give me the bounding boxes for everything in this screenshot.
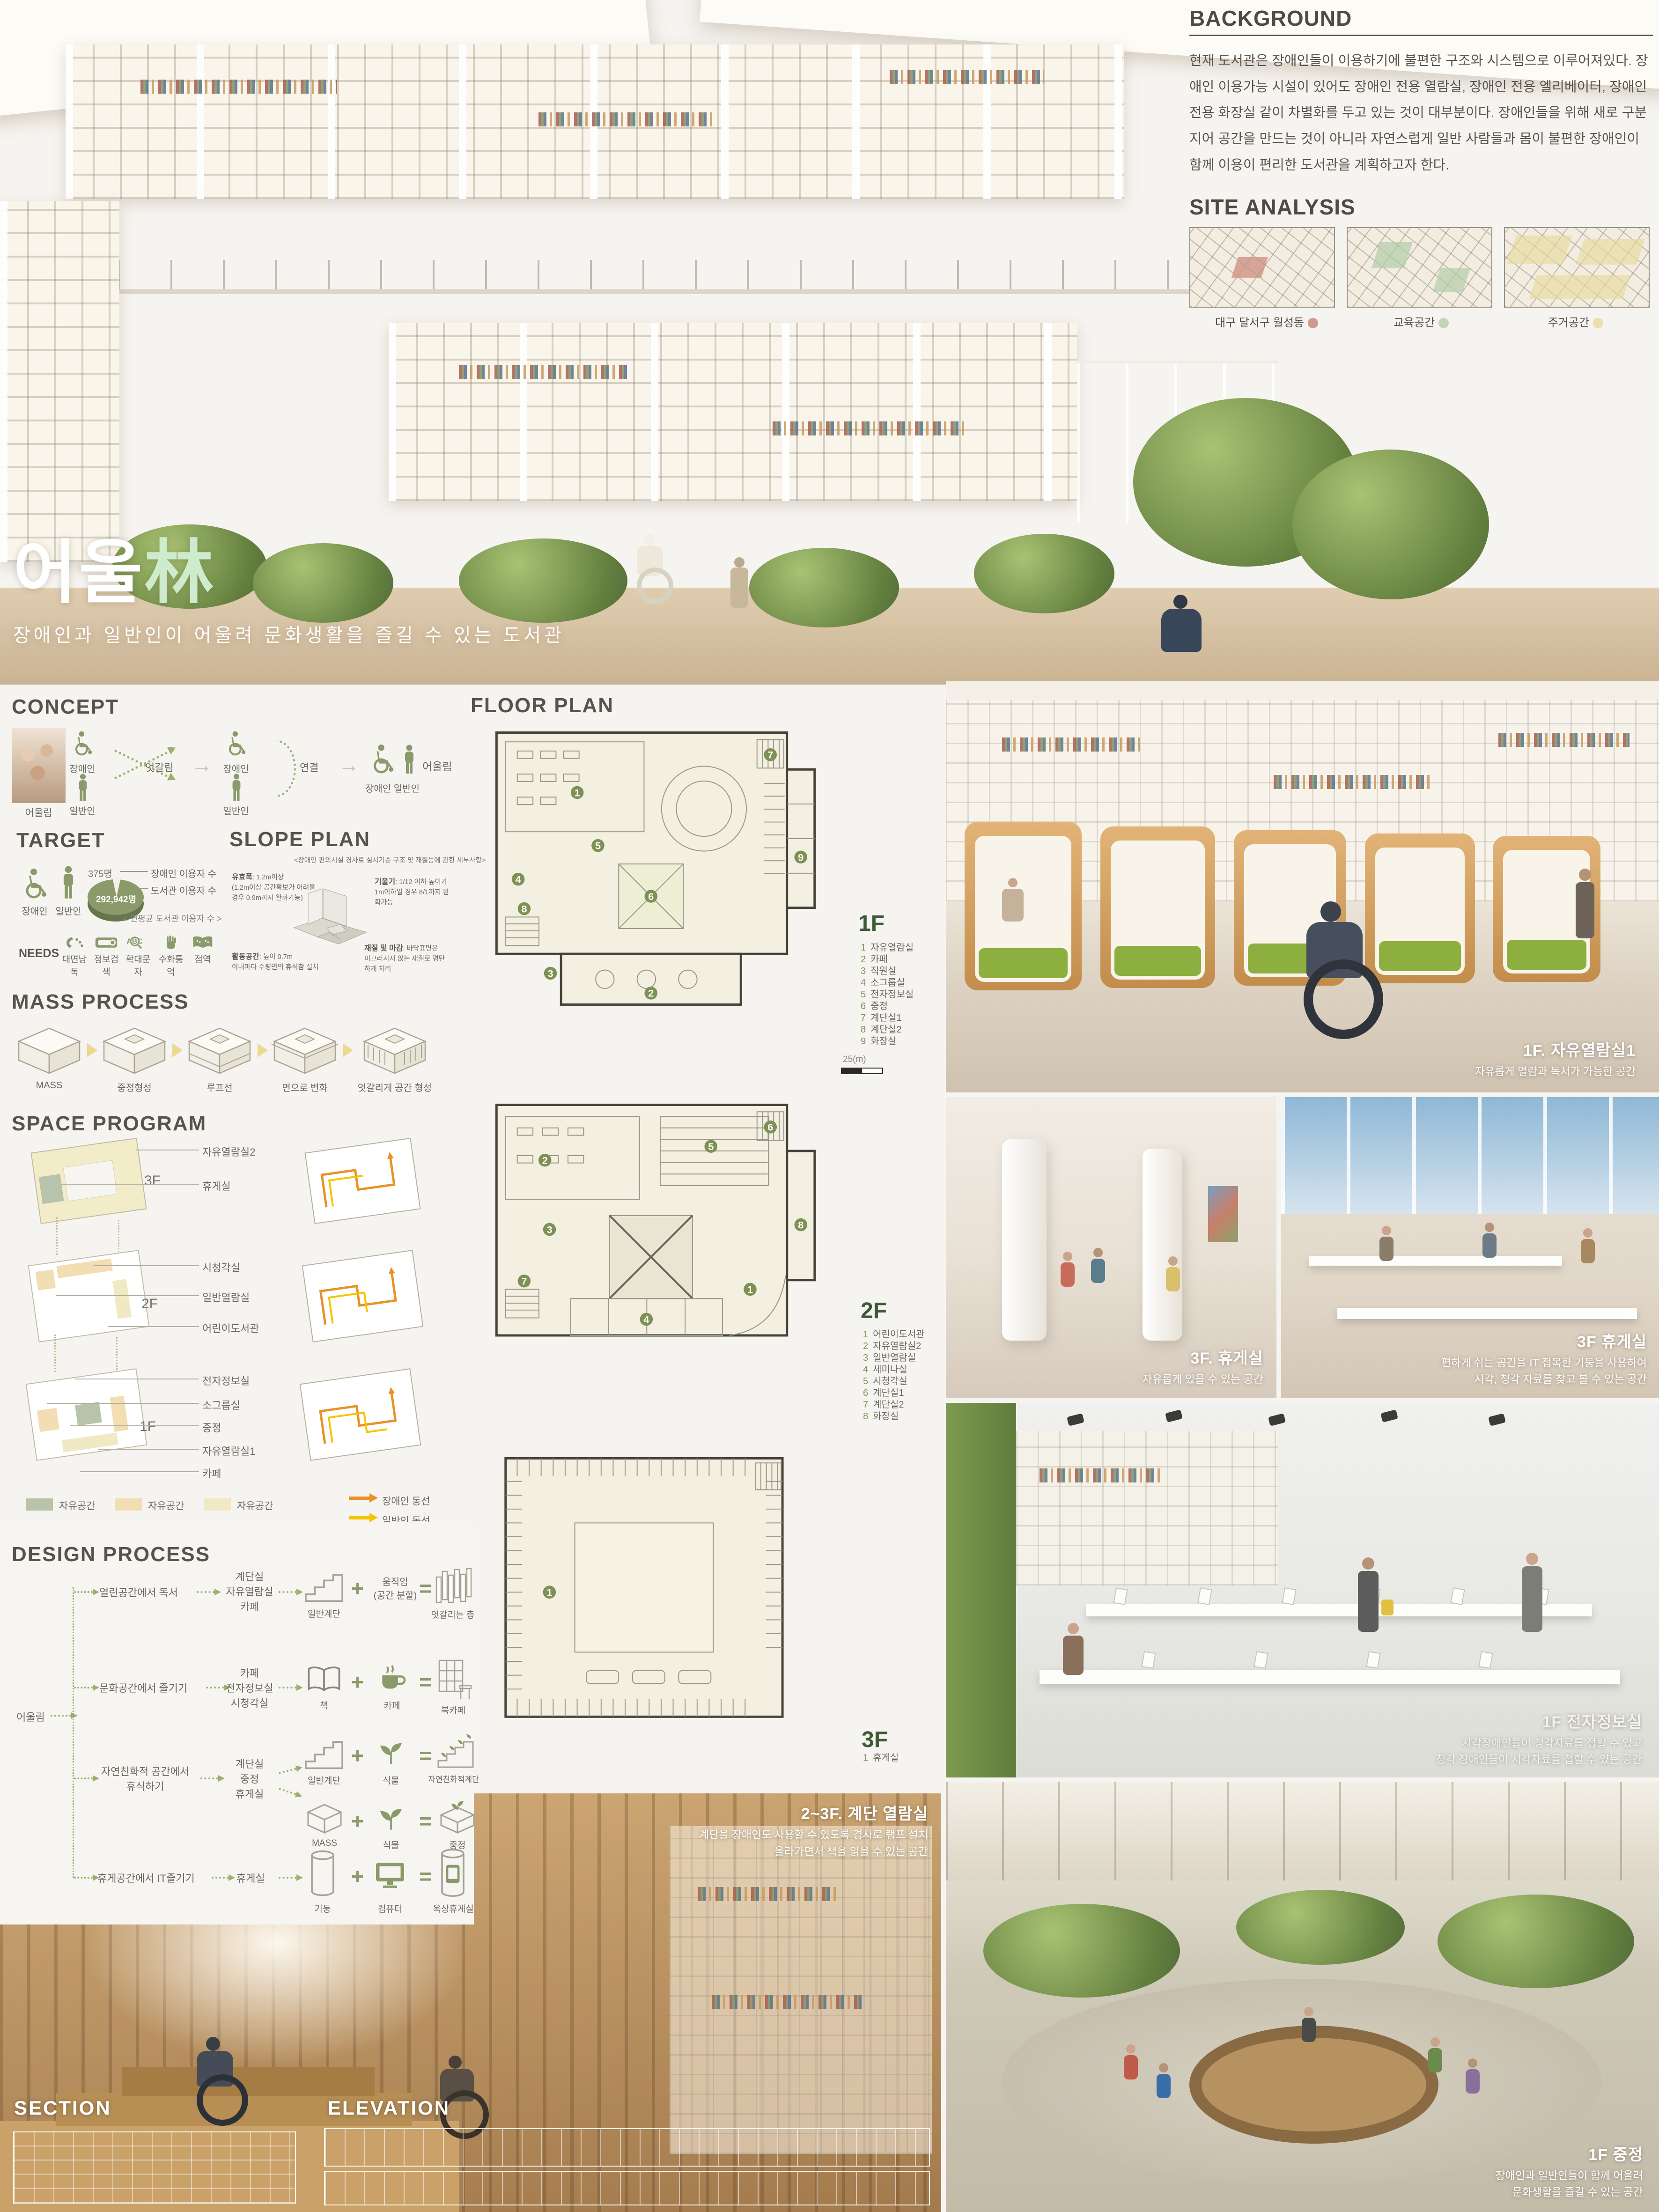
site-map-location	[1189, 227, 1335, 308]
round-column	[1002, 1139, 1047, 1341]
space-program-heading: SPACE PROGRAM	[12, 1112, 206, 1135]
icon-label: 옥상휴게실	[431, 1902, 476, 1915]
plus-operator: +	[351, 1576, 364, 1601]
plan-legend-item: 4소그룹실	[861, 977, 905, 989]
visitor	[1379, 1226, 1394, 1261]
arrow-icon: →	[191, 752, 213, 777]
equals-operator: =	[419, 1864, 432, 1889]
plant-icon	[377, 1804, 405, 1833]
circulation-diagram-2f	[302, 1250, 424, 1342]
space-label: 소그룹실	[202, 1397, 240, 1412]
svg-text:4: 4	[516, 874, 521, 885]
site-map-caption: 주거공간	[1498, 313, 1653, 330]
disabled-label: 장애인	[66, 761, 99, 775]
presentation-board: 어울林 장애인과 일반인이 어울려 문화생활을 즐길 수 있는 도서관 BACK…	[0, 0, 1659, 2212]
site-analysis-heading: SITE ANALYSIS	[1189, 194, 1653, 220]
tablet-stand	[1253, 1651, 1268, 1669]
activity-label: 문화공간에서 즐기기	[99, 1680, 187, 1695]
tablet-table	[1086, 1604, 1592, 1616]
process-arrow	[343, 1043, 353, 1057]
window-sky	[1281, 1097, 1659, 1214]
tablet-stand	[1282, 1587, 1297, 1605]
general-circulation-arrow	[349, 1516, 370, 1519]
plan-legend-item: 6중정	[861, 1001, 888, 1012]
tablet-stand	[1366, 1651, 1381, 1669]
crossing-label: 엇갈림	[145, 759, 174, 774]
courtyard-cube-icon	[438, 1797, 477, 1838]
plus-operator: +	[351, 1743, 364, 1768]
legend-label: 자유공간	[148, 1498, 184, 1512]
target-heading: TARGET	[16, 829, 105, 852]
process-arrow	[87, 1043, 97, 1057]
icon-label: 카페	[376, 1699, 408, 1711]
svg-text:4: 4	[643, 1313, 649, 1325]
person-icon	[76, 774, 90, 804]
pie-large-value: 292,942명	[92, 892, 140, 905]
needs-label: NEEDS	[19, 947, 59, 960]
need-magnified-text: ABC 확대문자	[123, 936, 154, 978]
photographer-silhouette	[1161, 595, 1202, 652]
design-process-heading: DESIGN PROCESS	[12, 1543, 210, 1566]
design-root-label: 어울림	[16, 1709, 45, 1724]
render-caption-title: 2~3F. 계단 열람실	[699, 1801, 928, 1824]
concept-photo	[12, 728, 66, 803]
leader-line	[120, 871, 148, 872]
ceiling-spotlight	[1067, 1413, 1084, 1426]
visitor	[1428, 2037, 1442, 2072]
media-screen	[1208, 1186, 1238, 1242]
svg-text:1: 1	[575, 787, 580, 798]
plan-legend-item: 2자유열람실2	[863, 1341, 921, 1352]
railing	[66, 289, 1199, 294]
stairs-icon	[303, 1738, 345, 1773]
visitor	[1124, 2044, 1138, 2079]
explode-guide	[118, 1220, 119, 1255]
svg-text:ABC: ABC	[126, 938, 143, 946]
poster-subtitle: 장애인과 일반인이 어울려 문화생활을 즐길 수 있는 도서관	[13, 620, 565, 647]
floor-tag-3f: 3F	[144, 1173, 161, 1189]
person-icon	[402, 745, 417, 777]
flow-arrow	[279, 1591, 296, 1593]
standing-visitor	[1522, 1553, 1542, 1632]
reading-pod	[1100, 826, 1215, 988]
leader-line	[94, 1265, 199, 1266]
flow-arrow	[212, 1877, 229, 1879]
courtyard-planting	[1236, 1890, 1405, 1965]
railing-posts	[66, 260, 1189, 291]
process-arrow	[172, 1043, 183, 1057]
need-braille: 점역	[187, 936, 218, 965]
svg-text:2: 2	[648, 988, 654, 999]
together-label: 어울림	[422, 758, 452, 774]
book-icon	[305, 1665, 343, 1697]
mass-cube-icon	[305, 1803, 344, 1838]
design-process-panel: DESIGN PROCESS 어울림 열린공간에서 독서 계단실 자유열람실 카…	[0, 1522, 474, 1924]
leader-line	[137, 888, 148, 889]
visitor	[1091, 1248, 1105, 1283]
wheelchair-user-silhouette	[1306, 901, 1383, 1039]
icon-label: 식물	[377, 1838, 405, 1851]
explode-guide	[116, 1337, 118, 1373]
street-pattern	[1348, 228, 1491, 307]
floor-plan-3f-drawing: 1	[480, 1440, 836, 1761]
seated-visitor	[1063, 1623, 1084, 1675]
legend-label: 자유공간	[237, 1498, 273, 1512]
bookshelf-wall	[1016, 1431, 1278, 1585]
flow-arrow	[279, 1687, 296, 1688]
general-label: 일반인	[66, 804, 99, 817]
stepped-platform	[122, 2067, 375, 2096]
title-hanja: 林	[144, 534, 215, 612]
pie-caption: < 연평균 도서관 이용자 수 >	[123, 912, 222, 924]
icon-label: 식물	[377, 1774, 405, 1786]
flow-trunk	[73, 1587, 74, 1878]
icon-label: 일반계단	[300, 1774, 348, 1786]
visitor	[1581, 1228, 1595, 1263]
svg-text:3: 3	[547, 1224, 553, 1235]
space-label: 시청각실	[202, 1260, 240, 1275]
lower-bookshelf-band	[389, 323, 1077, 501]
book-spines	[1498, 733, 1630, 747]
background-body: 현재 도서관은 장애인들이 이용하기에 불편한 구조와 시스템으로 이루어져있다…	[1189, 48, 1653, 178]
connection-label: 연결	[300, 759, 318, 774]
floor-tag-1f: 1F	[140, 1419, 156, 1435]
general-label: 일반인	[219, 804, 253, 817]
leader-line	[108, 1326, 199, 1327]
render-3f-lounge: 3F. 휴게실 자유롭게 있을 수 있는 공간	[946, 1097, 1276, 1398]
general-room-patch	[36, 1269, 56, 1290]
book-spines	[1274, 775, 1433, 789]
plus-term-label: 움직임 (공간 분할)	[369, 1574, 421, 1601]
book-spines	[712, 1995, 862, 2009]
site-map-caption: 대구 달서구 월성동	[1189, 313, 1344, 330]
book-spines	[538, 112, 716, 126]
connection-arc	[257, 740, 296, 797]
render-3f-lounge-tables: 3F 휴게실 편하게 쉬는 공간을 IT 접목한 기둥을 사용하여 시각, 청각…	[1281, 1097, 1659, 1398]
svg-text:6: 6	[648, 891, 654, 902]
mass-step: 루프선	[184, 1025, 255, 1094]
flow-arrow	[279, 1768, 296, 1774]
rest-area-patch	[39, 1174, 64, 1204]
icon-label: 기둥	[307, 1902, 339, 1915]
plan-tag-1f: 1F	[858, 911, 885, 936]
stairs-icon	[303, 1571, 345, 1606]
plan-legend-item: 5전자정보실	[861, 989, 914, 1001]
elevation-heading: ELEVATION	[328, 2097, 450, 2119]
bookshelf-wall	[670, 1826, 932, 2154]
visitor	[1302, 2007, 1316, 2042]
tablet-stand	[1141, 1651, 1156, 1669]
site-map-education	[1347, 227, 1492, 308]
plan-legend-item: 7계단실2	[863, 1399, 904, 1411]
render-caption-lines: 시각장애인들이 청각자료를 접할 수 있고 청각 장애인들이 시각자료를 접할 …	[1436, 1735, 1642, 1768]
plus-operator: +	[351, 1808, 364, 1834]
legend-label: 자유공간	[59, 1498, 95, 1512]
residential-dot	[1593, 318, 1603, 328]
children-lib-patch	[112, 1279, 132, 1319]
ceiling-spotlight	[1165, 1409, 1183, 1423]
need-face-reading: 대면낭독	[59, 936, 90, 978]
equals-operator: =	[419, 1808, 432, 1834]
arrow-icon: →	[338, 752, 360, 777]
plus-operator: +	[351, 1669, 364, 1695]
circulation-diagram-1f	[300, 1368, 421, 1461]
flow-arrow	[279, 1877, 296, 1879]
tablet-stand	[1197, 1587, 1212, 1605]
space-list: 계단실 중정 휴게실	[224, 1756, 275, 1801]
plan-legend-item: 1자유열람실	[861, 942, 914, 954]
slope-axon-drawing	[289, 883, 369, 956]
render-caption-title: 3F 휴게실	[1441, 1329, 1647, 1352]
svg-text:3: 3	[548, 967, 553, 979]
plan-legend-item: 1어린이도서관	[863, 1329, 925, 1341]
render-caption-lines: 자유롭게 있을 수 있는 공간	[1143, 1371, 1263, 1388]
flow-arrow	[197, 1591, 214, 1593]
slope-plan-heading: SLOPE PLAN	[229, 828, 370, 851]
ceiling-spotlight	[1268, 1413, 1286, 1426]
activity-label: 열린공간에서 독서	[99, 1585, 178, 1600]
leader-line	[56, 1295, 199, 1296]
wheelchair-icon	[368, 743, 397, 777]
flow-arrow	[74, 1877, 93, 1879]
mass-step: 중정형성	[99, 1025, 170, 1094]
plant-icon	[377, 1738, 405, 1768]
legend-swatch-tan	[115, 1498, 142, 1511]
plan-legend-item: 3직원실	[861, 966, 896, 977]
education-dot	[1438, 318, 1449, 328]
leader-line	[47, 1403, 199, 1404]
visitor	[1166, 1256, 1180, 1291]
need-sign-language: 수화통역	[155, 936, 186, 978]
title-korean: 어울	[13, 534, 144, 612]
tablet-stand	[1478, 1651, 1493, 1669]
general-label: 일반인	[53, 904, 83, 917]
eco-stairs-icon	[435, 1732, 476, 1771]
background-heading: BACKGROUND	[1189, 6, 1653, 36]
person-icon	[229, 774, 243, 804]
render-caption-lines: 장애인과 일반인들이 함께 어울려 문화생활을 즐길 수 있는 공간	[1496, 2168, 1643, 2201]
slope-note-gradient: 기울기: 1/12 이하 높이가 1m이하일 경우 8/1까지 완 화가능	[375, 877, 459, 908]
space-list: 카페 전자정보실 시청각실	[224, 1665, 275, 1710]
space-list: 휴게실	[236, 1870, 265, 1885]
visitor	[1482, 1223, 1497, 1258]
left-bookshelf-stack	[0, 201, 119, 562]
leader-line	[70, 1425, 199, 1426]
plan-legend-item: 1휴게실	[863, 1752, 899, 1764]
flow-arrow	[74, 1777, 93, 1779]
yellow-bag	[1381, 1600, 1394, 1615]
wheelchair-icon	[70, 730, 95, 759]
plan-legend-item: 2카페	[861, 954, 888, 966]
activity-label: 자연친화적 공간에서 휴식하기	[94, 1763, 197, 1793]
pie-small-label: 장애인 이용자 수	[151, 866, 216, 880]
icon-label: MASS	[305, 1838, 344, 1849]
explode-guide	[54, 1335, 56, 1372]
site-map-caption: 교육공간	[1344, 313, 1498, 330]
flow-arrow	[200, 1777, 218, 1779]
book-spines	[890, 70, 1044, 84]
coffee-cup-icon	[377, 1663, 406, 1695]
book-spines	[773, 421, 965, 435]
visitor	[1466, 2058, 1480, 2094]
wheelchair-user-silhouette	[197, 2037, 248, 2126]
svg-text:9: 9	[798, 851, 804, 863]
residential-zone	[1576, 239, 1645, 265]
svg-text:8: 8	[521, 903, 527, 915]
equals-operator: =	[419, 1743, 432, 1768]
mass-step: 엇갈리게 공간 형성	[355, 1025, 435, 1094]
elevation-drawing	[324, 2128, 930, 2167]
pair-label: 장애인 일반인	[364, 781, 420, 795]
table	[1337, 1308, 1637, 1319]
standing-person	[1576, 869, 1594, 938]
render-courtyard: 1F 중정 장애인과 일반인들이 함께 어울려 문화생활을 즐길 수 있는 공간	[946, 1782, 1659, 2212]
space-label: 카페	[202, 1466, 221, 1481]
location-dot	[1308, 318, 1318, 328]
icon-label: 북카페	[430, 1703, 477, 1716]
section-heading: SECTION	[14, 2097, 111, 2119]
circulation-label: 장애인 동선	[382, 1494, 430, 1508]
plan-legend-item: 8화장실	[863, 1411, 899, 1423]
plan-tag-2f: 2F	[861, 1298, 887, 1324]
space-list: 계단실 자유열람실 카페	[224, 1569, 275, 1614]
render-caption-title: 1F. 자유열람실1	[1475, 1038, 1636, 1061]
space-diagram-1f	[26, 1368, 147, 1461]
plan-legend-item: 9화장실	[861, 1036, 896, 1047]
render-caption-title: 1F 중정	[1496, 2142, 1643, 2165]
space-label: 휴게실	[202, 1178, 231, 1193]
icon-label: 자연친화적계단	[425, 1773, 482, 1784]
activity-label: 휴게공간에서 IT즐기기	[97, 1870, 195, 1885]
space-label: 자유열람실1	[202, 1443, 255, 1458]
floor-plan-2f-drawing: 1 2 3 4 5 6 7 8	[480, 1091, 836, 1398]
render-caption-lines: 편하게 쉬는 공간을 IT 접목한 기둥을 사용하여 시각, 청각 자료를 찾고…	[1441, 1355, 1647, 1388]
tree-canopy	[1292, 450, 1489, 599]
render-caption-title: 3F. 휴게실	[1143, 1345, 1263, 1368]
svg-text:8: 8	[798, 1219, 804, 1231]
leader-line	[61, 1184, 199, 1185]
wheelchair-user-silhouette	[637, 534, 673, 604]
icon-label: 엇갈리는 층	[427, 1608, 479, 1621]
space-diagram-3f	[30, 1138, 147, 1224]
round-column	[1143, 1149, 1182, 1341]
visitor-with-bag	[1358, 1557, 1379, 1632]
book-spines	[140, 80, 337, 94]
concept-photo-caption: 어울림	[12, 805, 66, 819]
pie-small-value: 375명	[88, 866, 112, 880]
floor-plan-1f-drawing: 1 2 3 4 5 6 7 8 9	[480, 719, 836, 1021]
visitor	[1061, 1252, 1075, 1287]
ceiling-spotlight	[1488, 1413, 1506, 1426]
slope-plan-subtitle: <장애인 편의시설 경사로 설치기준 구조 및 재질등에 관한 세부사항>	[294, 855, 486, 865]
glass-facade	[946, 1782, 1659, 1880]
circulation-diagram-3f	[304, 1138, 420, 1224]
book-cafe-icon	[435, 1659, 473, 1704]
table	[1309, 1256, 1562, 1266]
slope-note-material: 재질 및 마감: 바닥표면은 미끄러지지 않는 재질로 평탄 하게 처리	[364, 943, 460, 975]
leader-line	[80, 1471, 199, 1472]
seated-person	[1002, 878, 1024, 922]
hero-render: 어울林 장애인과 일반인이 어울려 문화생활을 즐길 수 있는 도서관 BACK…	[0, 0, 1659, 685]
space-diagram-2f	[28, 1250, 150, 1342]
icon-label: 책	[309, 1699, 339, 1711]
icon-label: 컴퓨터	[373, 1902, 407, 1915]
svg-text:7: 7	[767, 749, 773, 761]
mass-process-heading: MASS PROCESS	[12, 990, 189, 1014]
elevation-drawing	[324, 2171, 930, 2205]
section-drawing	[13, 2131, 296, 2204]
plan-legend-item: 8계단실2	[861, 1024, 901, 1036]
plus-operator: +	[351, 1864, 364, 1889]
svg-text:6: 6	[767, 1121, 773, 1133]
person-silhouette	[730, 557, 748, 608]
svg-text:1: 1	[546, 1586, 552, 1598]
svg-text:5: 5	[595, 840, 601, 852]
plan-legend-item: 7계단실1	[861, 1012, 901, 1024]
space-label: 어린이도서관	[202, 1320, 259, 1335]
site-map-residential	[1504, 227, 1650, 308]
flow-arrow	[74, 1687, 93, 1688]
plan-scale-label: 25(m)	[843, 1054, 866, 1065]
wheelchair-icon	[224, 730, 248, 759]
poster-title: 어울林 장애인과 일반인이 어울려 문화생활을 즐길 수 있는 도서관	[13, 538, 565, 647]
equals-operator: =	[419, 1576, 432, 1601]
bush	[974, 534, 1114, 613]
space-label: 전자정보실	[202, 1373, 250, 1388]
leader-line	[75, 1379, 199, 1379]
staggered-floors-icon	[435, 1565, 472, 1607]
legend-swatch-yellow	[204, 1498, 231, 1511]
flow-arrow	[74, 1591, 93, 1593]
residential-zone	[1529, 275, 1631, 299]
need-info-search: 정보검색	[91, 936, 122, 978]
computer-icon	[374, 1860, 406, 1891]
ceiling-spotlight	[1380, 1409, 1398, 1423]
person-icon	[60, 865, 77, 902]
disabled-label: 장애인	[219, 761, 253, 775]
background-panel: BACKGROUND 현재 도서관은 장애인들이 이용하기에 불편한 구조와 시…	[1189, 6, 1653, 330]
column-icon	[309, 1850, 336, 1902]
plan-legend-item: 4세미나실	[863, 1364, 907, 1376]
book-spines	[459, 365, 627, 379]
pie-large-label: 도서관 이용자 수	[151, 883, 216, 897]
tablet-stand	[1450, 1587, 1465, 1605]
concept-heading: CONCEPT	[12, 695, 119, 719]
floor-plan-heading: FLOOR PLAN	[471, 694, 614, 717]
it-column-icon	[439, 1848, 466, 1902]
leader-line	[136, 1150, 199, 1150]
green-accent-wall	[946, 1403, 1016, 1777]
mass-step: MASS	[14, 1025, 84, 1091]
render-caption-lines: 자유롭게 열람과 독서가 가능한 공간	[1475, 1063, 1636, 1080]
circular-bench	[1189, 2026, 1438, 2144]
svg-text:5: 5	[708, 1141, 714, 1152]
courtyard-void	[63, 1160, 117, 1201]
mass-step: 면으로 변화	[270, 1025, 340, 1094]
explode-guide	[56, 1217, 58, 1255]
book-spines	[1002, 737, 1143, 752]
av-room-patch	[56, 1259, 112, 1278]
render-caption-lines: 계단을 장애인도 사용할 수 있도록 경사로 램프 설치 올라가면서 책을 읽을…	[699, 1827, 928, 1860]
render-caption-title: 1F 전자정보실	[1436, 1709, 1642, 1732]
bush	[749, 548, 899, 627]
equals-operator: =	[419, 1669, 432, 1695]
svg-text:1: 1	[747, 1283, 753, 1295]
reading-room-patch	[110, 1396, 128, 1432]
floor-tag-2f: 2F	[141, 1296, 158, 1312]
tablet-stand	[1113, 1587, 1128, 1605]
process-arrow	[258, 1043, 268, 1057]
